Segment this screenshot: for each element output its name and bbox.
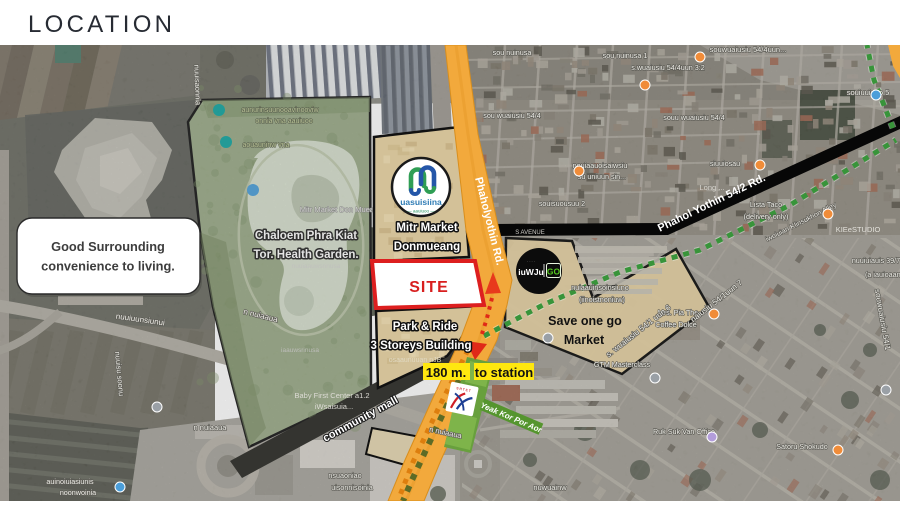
svg-text:GTM Masterclass: GTM Masterclass	[594, 360, 651, 369]
svg-text:Long ...: Long ...	[699, 183, 724, 192]
svg-text:souwuaiusiu 54/4uun...: souwuaiusiu 54/4uun...	[710, 45, 787, 54]
svg-text:. . . .: . . . .	[527, 258, 535, 263]
svg-text:S AVENUE: S AVENUE	[515, 230, 545, 236]
svg-text:KIEeSTUDIO: KIEeSTUDIO	[836, 225, 881, 234]
svg-text:nuiaauinsoinsiuno: nuiaauinsoinsiuno	[571, 283, 629, 292]
svg-text:osaaunuuan nJB: osaaunuuan nJB	[389, 357, 442, 364]
svg-text:s.wuaiusiu 54/4uun 3:2: s.wuaiusiu 54/4uun 3:2	[631, 63, 705, 72]
svg-text:GO: GO	[547, 267, 561, 277]
svg-text:LOCATION: LOCATION	[28, 11, 175, 38]
svg-text:siuuiosau: siuuiosau	[710, 159, 740, 168]
svg-text:(delivery only): (delivery only)	[744, 212, 789, 221]
svg-text:180 m.: 180 m.	[426, 365, 466, 380]
svg-text:Ruk Suk Van Office: Ruk Suk Van Office	[653, 427, 715, 436]
svg-text:souisuousuu 2: souisuousuu 2	[539, 199, 585, 208]
svg-text:sou wuaiusiu 54/4: sou wuaiusiu 54/4	[483, 111, 541, 120]
svg-text:(a iauioaan): (a iauioaan)	[865, 270, 900, 279]
svg-text:Save one go: Save one go	[548, 314, 622, 328]
svg-text:iuWJu: iuWJu	[518, 267, 544, 277]
svg-text:iWsaisuia...: iWsaisuia...	[315, 402, 353, 411]
svg-text:Market: Market	[564, 333, 605, 347]
svg-text:Park & Ride: Park & Ride	[393, 321, 458, 333]
svg-text:— aauiuoo —: — aauiuoo —	[407, 209, 435, 214]
svg-text:sou nuinusa 1: sou nuinusa 1	[603, 51, 648, 60]
svg-text:Coffee Dolce: Coffee Dolce	[655, 320, 696, 329]
svg-text:SITE: SITE	[409, 279, 449, 296]
svg-text:Lista Taco: Lista Taco	[750, 200, 782, 209]
svg-text:nsuaoniao: nsuaoniao	[328, 471, 361, 480]
svg-text:Baby First Center a1.2: Baby First Center a1.2	[294, 391, 369, 400]
svg-text:(iinoistnoniuw): (iinoistnoniuw)	[579, 295, 625, 304]
svg-text:nuuiuiauis 39/7: nuuiuiauis 39/7	[852, 256, 900, 265]
svg-text:to station: to station	[475, 365, 534, 380]
svg-text:uisonnisoinia: uisonnisoinia	[331, 483, 373, 492]
svg-text:convenience to living.: convenience to living.	[41, 259, 175, 274]
svg-text:3 Storeys Building: 3 Storeys Building	[371, 340, 472, 352]
svg-text:Good Surrounding: Good Surrounding	[51, 239, 165, 254]
svg-text:Mitr Market: Mitr Market	[396, 222, 458, 234]
svg-text:Donmueang: Donmueang	[394, 241, 460, 253]
svg-text:nuuisaonnia: nuuisaonnia	[192, 65, 202, 107]
svg-text:noonwoinia: noonwoinia	[60, 488, 96, 497]
svg-text:n nuiaaua: n nuiaaua	[194, 423, 228, 432]
svg-text:souiuuiauo 5: souiuuiauo 5	[847, 88, 890, 97]
svg-text:souu wuaiusiu 54/4: souu wuaiusiu 54/4	[663, 113, 725, 122]
svg-text:nuwuainw: nuwuainw	[533, 483, 567, 492]
svg-text:uasuisiina: uasuisiina	[400, 197, 442, 207]
svg-text:Satoru Shokudo: Satoru Shokudo	[776, 442, 828, 451]
svg-text:auinoiuiasiunis: auinoiuiasiunis	[46, 477, 94, 486]
svg-text:sou nuinusa: sou nuinusa	[493, 48, 532, 57]
svg-text:su uniuun sin...: su uniuun sin...	[578, 172, 626, 181]
